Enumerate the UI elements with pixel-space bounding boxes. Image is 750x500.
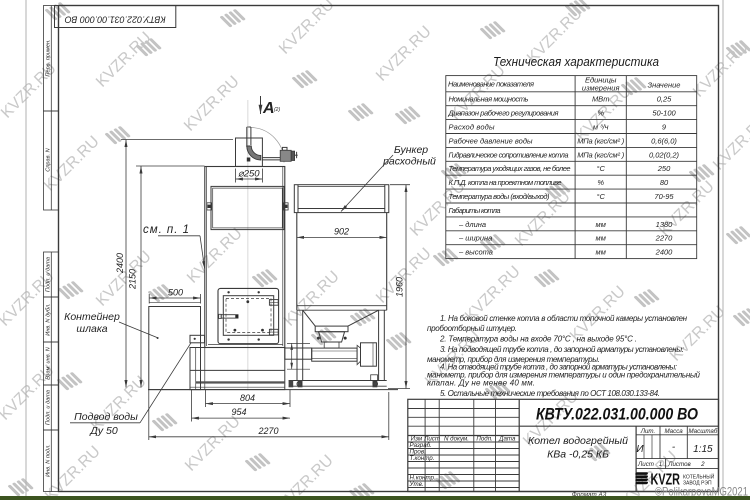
svg-text:Масштаб: Масштаб: [688, 428, 717, 435]
svg-text:Утв.: Утв.: [409, 481, 424, 488]
svg-text:Гидравлическое сопротивление к: Гидравлическое сопротивление котла: [449, 150, 569, 159]
svg-text:– высота: – высота: [458, 248, 493, 257]
svg-text:Котел водогрейный: Котел водогрейный: [528, 435, 628, 447]
svg-text:°С: °С: [596, 192, 605, 201]
svg-text:Значение: Значение: [648, 81, 681, 90]
svg-text:А: А: [262, 100, 275, 117]
svg-text:Листов: Листов: [667, 461, 691, 468]
svg-text:1. На боковой стенке котла в: 1. На боковой стенке котла в области топ…: [440, 314, 688, 323]
svg-text:КОТЕЛЬНЫЙ: КОТЕЛЬНЫЙ: [683, 473, 715, 481]
svg-text:Дата: Дата: [498, 436, 516, 443]
svg-text:2150: 2150: [128, 269, 138, 290]
svg-text:Бункер: Бункер: [394, 144, 428, 156]
svg-text:500: 500: [168, 288, 183, 298]
svg-text:Подп. и дата: Подп. и дата: [46, 257, 52, 292]
svg-text:Рабочее давление воды: Рабочее давление воды: [449, 136, 533, 145]
svg-text:мм: мм: [596, 248, 606, 257]
svg-text:К.П.Д. котла на проектном топл: К.П.Д. котла на проектном топливе: [449, 178, 562, 187]
svg-text:Ду 50: Ду 50: [89, 425, 118, 437]
svg-text:°С: °С: [596, 164, 605, 173]
svg-text:МПа (кгс/см² ): МПа (кгс/см² ): [577, 136, 625, 145]
svg-text:Т.контр.: Т.контр.: [410, 455, 435, 462]
svg-text:1960: 1960: [395, 277, 405, 297]
svg-text:КВа -0,25 КБ: КВа -0,25 КБ: [547, 449, 609, 461]
svg-text:1:15: 1:15: [693, 444, 713, 455]
svg-text:Лит.: Лит.: [640, 428, 656, 435]
svg-text:Взам. инв. N: Взам. инв. N: [46, 346, 52, 380]
svg-text:954: 954: [231, 407, 246, 417]
svg-text:Диапазон рабочего регулировани: Диапазон рабочего регулирования: [448, 109, 559, 118]
svg-text:Температура воды (вход/выход): Температура воды (вход/выход): [449, 192, 551, 201]
svg-text:И: И: [636, 444, 644, 455]
svg-text:Номинальная мощность: Номинальная мощность: [449, 95, 529, 104]
svg-text:2270: 2270: [257, 426, 278, 436]
svg-text:мм: мм: [596, 220, 606, 229]
svg-text:2. Температура воды на входе: 2. Температура воды на входе 70°С , на в…: [439, 335, 637, 344]
svg-text:1380: 1380: [656, 220, 674, 229]
svg-text:80: 80: [660, 178, 669, 187]
svg-text:N докум.: N докум.: [444, 436, 469, 443]
svg-text:– длина: – длина: [458, 220, 486, 229]
svg-text:0,02(0,2): 0,02(0,2): [649, 150, 680, 159]
svg-text:м ³/ч: м ³/ч: [593, 123, 609, 132]
svg-text:Подвод воды: Подвод воды: [74, 411, 138, 423]
svg-text:Габариты котла: Габариты котла: [449, 206, 501, 215]
svg-text:50-100: 50-100: [652, 109, 676, 118]
svg-text:МВт: МВт: [592, 95, 610, 104]
svg-text:Техническая характеристика: Техническая характеристика: [493, 55, 659, 69]
svg-text:0,6(6,0): 0,6(6,0): [651, 136, 677, 145]
svg-text:МПа (кгс/см² ): МПа (кгс/см² ): [577, 150, 625, 159]
svg-text:КВТУ.022.031.00.000 ВО: КВТУ.022.031.00.000 ВО: [536, 405, 698, 424]
svg-text:902: 902: [334, 227, 349, 237]
svg-text:– ширина: – ширина: [458, 234, 492, 243]
svg-text:2400: 2400: [115, 253, 125, 274]
svg-text:Подп. и дата: Подп. и дата: [46, 390, 52, 425]
svg-text:3. На подводящей трубе котла: 3. На подводящей трубе котла , до запорн…: [440, 345, 684, 354]
svg-text:2400: 2400: [655, 248, 674, 257]
svg-text:Подп.: Подп.: [476, 436, 492, 443]
svg-text:Инв. N дубл.: Инв. N дубл.: [46, 303, 52, 335]
svg-text:5. Остальные технические треб: 5. Остальные технические требования по О…: [440, 389, 660, 398]
svg-text:2270: 2270: [655, 234, 674, 243]
svg-text:Контейнер: Контейнер: [64, 311, 120, 323]
svg-text:Справ. N: Справ. N: [46, 147, 52, 171]
svg-text:Наименование показателя: Наименование показателя: [448, 80, 534, 89]
svg-text:(2): (2): [274, 107, 280, 113]
svg-text:Масса: Масса: [664, 428, 683, 435]
svg-text:Температура уходящих газов, не: Температура уходящих газов, не более: [449, 164, 571, 173]
svg-text:Расход воды: Расход воды: [449, 123, 495, 132]
svg-text:⌀250: ⌀250: [238, 168, 260, 179]
svg-text:1: 1: [659, 461, 662, 468]
svg-text:расходный: расходный: [382, 156, 436, 168]
svg-text:Лист: Лист: [637, 461, 654, 468]
svg-text:804: 804: [240, 393, 255, 403]
svg-text:см. п. 1: см. п. 1: [143, 224, 189, 236]
svg-text:мм: мм: [596, 234, 606, 243]
svg-text:КВТУ.022.031.00.000 ВО: КВТУ.022.031.00.000 ВО: [64, 14, 166, 25]
svg-text:250: 250: [657, 164, 671, 173]
svg-text:пробоотборный штуцер.: пробоотборный штуцер.: [427, 324, 517, 333]
svg-text:%: %: [597, 109, 604, 118]
svg-text:измерения: измерения: [582, 84, 620, 93]
svg-text:Инв. N подл.: Инв. N подл.: [46, 444, 52, 477]
svg-text:0,25: 0,25: [657, 95, 672, 104]
svg-text:клапан. Ду не менее 40 мм.: клапан. Ду не менее 40 мм.: [427, 379, 535, 388]
svg-text:%: %: [597, 178, 604, 187]
svg-text:2: 2: [700, 461, 705, 468]
svg-text:70-95: 70-95: [654, 192, 674, 201]
svg-text:Перв. примен.: Перв. примен.: [46, 39, 52, 76]
svg-text:шлака: шлака: [76, 323, 107, 335]
